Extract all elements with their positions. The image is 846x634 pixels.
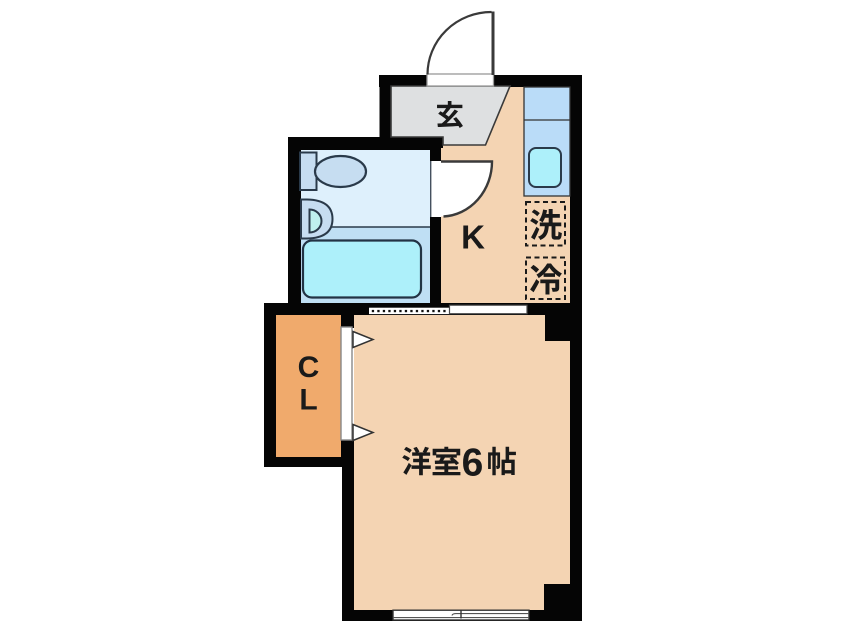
svg-text:6: 6 (462, 442, 484, 485)
svg-text:C: C (298, 351, 320, 384)
svg-text:K: K (461, 219, 485, 256)
svg-text:L: L (299, 384, 317, 417)
